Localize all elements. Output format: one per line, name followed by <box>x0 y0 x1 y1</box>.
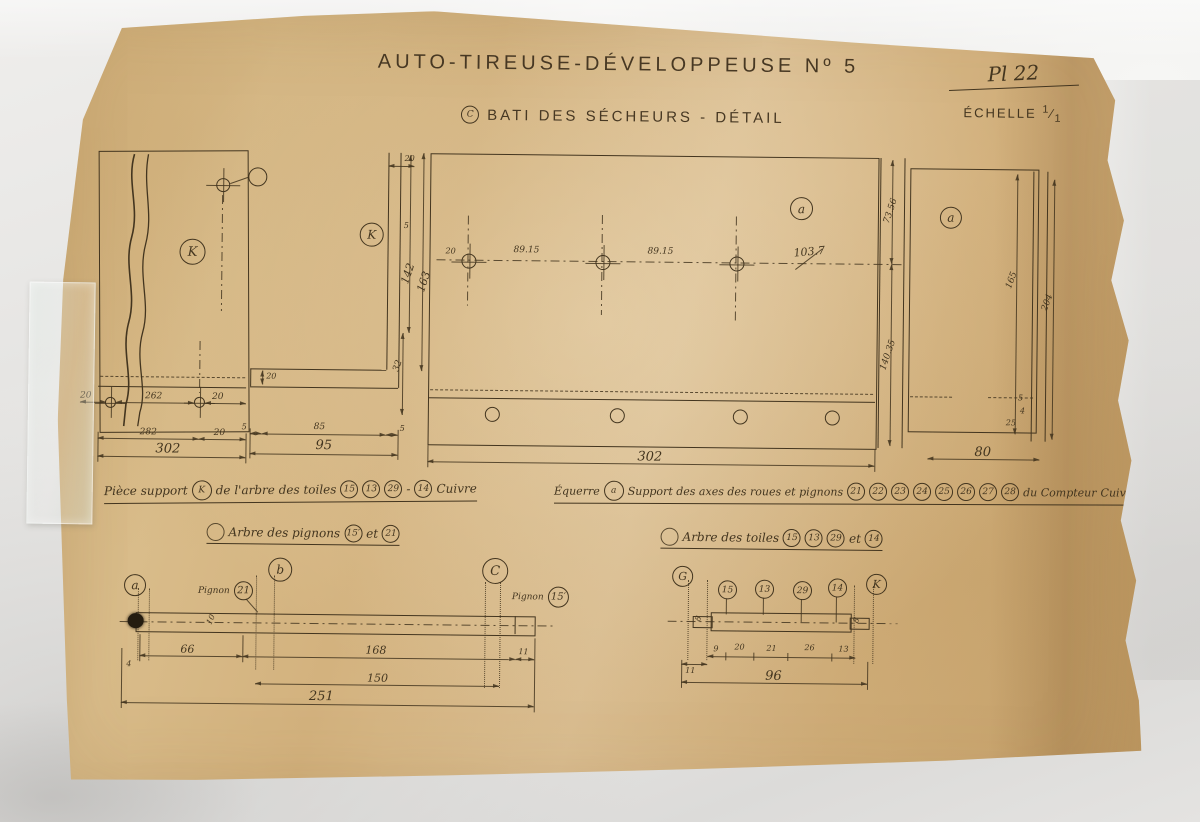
dim-label-total: 302 <box>637 449 662 464</box>
section-ref-g: G <box>672 566 693 587</box>
dim-line-v <box>262 370 263 384</box>
caption-num: 14 <box>414 480 432 498</box>
dim-label: 66 <box>180 643 194 656</box>
dim-line <box>98 438 199 440</box>
extension-line <box>874 450 875 472</box>
dim-label: 5 <box>242 422 247 431</box>
dim-line <box>249 453 397 456</box>
hole-crosshair <box>216 178 230 192</box>
drawing-title: AUTO-TIREUSE-DÉVELOPPEUSE Nº 5 <box>343 50 893 79</box>
caption-num: 15 <box>783 529 801 547</box>
caption-ref-a: a <box>604 481 624 501</box>
dim-label: 20 <box>214 428 226 438</box>
dim-label: 20 <box>734 642 744 651</box>
caption-ref-k: K <box>192 480 212 500</box>
caption-material: Cuivre <box>1101 486 1138 499</box>
dim-label: 142 <box>398 261 417 285</box>
section-ref-b: b <box>268 558 292 582</box>
dim-label: 5 <box>400 424 405 433</box>
caption-num: 15′ <box>344 524 362 542</box>
scale-label: ÉCHELLE <box>963 105 1036 121</box>
part-num: 13 <box>755 580 774 599</box>
dim-tick <box>831 653 832 661</box>
bolt-hole <box>485 407 500 422</box>
dim-label: 20 <box>446 246 456 255</box>
hole-crosshair <box>595 255 610 270</box>
dim-label: 21 <box>766 644 776 653</box>
caption-num: 25 <box>935 483 953 501</box>
bullet-circle <box>660 528 678 546</box>
caption-num: 13 <box>362 480 380 498</box>
dim-label: 20 <box>266 372 276 381</box>
hole-crosshair <box>194 397 205 408</box>
dim-label: 140.35 <box>878 339 898 372</box>
caption-num: 15 <box>340 480 358 498</box>
divider-line <box>902 158 906 448</box>
extension-line <box>534 638 536 712</box>
dim-label-total: 80 <box>974 445 991 460</box>
pignon-label: Pignon <box>512 592 544 602</box>
dim-label: 25 <box>1006 418 1016 427</box>
dim-label: 4 <box>126 659 131 668</box>
hole-crosshair <box>729 256 744 271</box>
part-ref-a2: a <box>940 207 962 229</box>
part-ref-k: K <box>179 239 205 265</box>
dim-label-total: 95 <box>315 438 332 453</box>
dim-line <box>250 433 262 434</box>
caption-material: Cuivre <box>436 481 476 495</box>
pignon-label: Pignon <box>198 586 230 596</box>
bolt-hole <box>825 410 840 425</box>
dim-tick <box>787 653 788 661</box>
dim-label: 89.15 <box>514 245 540 255</box>
caption-num: 21 <box>847 483 865 501</box>
dim-label: 73.56 <box>882 197 900 225</box>
subtitle-text: BATI DES SÉCHEURS - DÉTAIL <box>487 106 785 126</box>
photo-scene: AUTO-TIREUSE-DÉVELOPPEUSE Nº 5 C BATI DE… <box>0 0 1200 822</box>
plate-number: Pl 22 <box>948 59 1079 91</box>
drawing-sheet: AUTO-TIREUSE-DÉVELOPPEUSE Nº 5 C BATI DE… <box>46 0 1149 801</box>
dim-line <box>242 656 515 660</box>
caption-num: 13 <box>805 529 823 547</box>
dim-line <box>386 435 398 436</box>
caption-piece-k: Pièce support K de l'arbre des toiles 15… <box>104 478 477 504</box>
profile-line <box>386 153 389 370</box>
dim-line-v <box>402 333 404 415</box>
dim-label: 11 <box>685 666 695 675</box>
section-ref-k: K <box>866 574 887 595</box>
scale-note: ÉCHELLE 1∕1 <box>933 102 1093 125</box>
dim-label: 9 <box>713 644 718 653</box>
section-cut-dotted <box>687 580 689 660</box>
dim-label: 26 <box>804 643 814 652</box>
dim-line <box>262 433 386 435</box>
panel-a-outline <box>428 153 880 450</box>
part-num: 29 <box>793 581 812 600</box>
caption-text: Équerre <box>554 484 600 497</box>
dim-label-total: 302 <box>155 441 180 456</box>
section-ref-a: a <box>124 574 146 596</box>
dim-label: 5 <box>1018 393 1023 402</box>
part-ref-k-profile: K <box>360 223 384 247</box>
caption-text: - <box>406 482 410 496</box>
caption-num: 29 <box>827 529 845 547</box>
dim-label: 4 <box>1020 406 1025 415</box>
caption-text: Pièce support <box>104 484 188 499</box>
extension-line <box>867 662 868 690</box>
dim-label-total: 251 <box>309 689 334 704</box>
drawing-subtitle: C BATI DES SÉCHEURS - DÉTAIL <box>403 105 843 128</box>
scale-numerator: 1 <box>1042 104 1050 116</box>
scale-denominator: 1 <box>1054 113 1062 125</box>
bullet-circle <box>207 523 225 541</box>
extension-line <box>427 445 428 467</box>
caption-num: 27 <box>979 483 997 501</box>
caption-arbre-toiles: Arbre des toiles 15 13 29 et 14 <box>660 528 883 551</box>
bolt-hole <box>733 409 748 424</box>
dim-label: 262 <box>145 391 162 401</box>
caption-num: 24 <box>913 483 931 501</box>
part-ref-a: a <box>790 197 813 220</box>
profile-line <box>250 386 398 389</box>
caption-text: de l'arbre des toiles <box>216 482 337 497</box>
dim-line-v <box>421 153 424 371</box>
dim-label: 150 <box>367 672 388 685</box>
dim-line <box>515 659 534 660</box>
dim-label: 89.15 <box>648 247 674 257</box>
dim-tick <box>753 653 754 661</box>
dim-label: 85 <box>314 422 326 432</box>
part-num: 14 <box>828 578 847 597</box>
hole-crosshair <box>105 397 116 408</box>
profile-line <box>250 368 251 386</box>
caption-text: du Compteur <box>1023 486 1096 499</box>
pignon-num: 21 <box>234 581 253 600</box>
dim-label: 13 <box>838 645 848 654</box>
caption-num: 14 <box>865 530 883 548</box>
caption-num: 22 <box>869 483 887 501</box>
caption-text: et <box>849 532 861 546</box>
ink-blot <box>128 613 144 628</box>
extension-line <box>397 430 398 460</box>
extension-line <box>121 648 123 708</box>
section-cut-dotted <box>872 586 874 664</box>
caption-num: 23 <box>891 483 909 501</box>
dim-label: 5 <box>404 221 409 230</box>
caption-text: Arbre des pignons <box>229 525 341 540</box>
pignon-num: 15′ <box>548 586 569 607</box>
caption-num: 29 <box>384 480 402 498</box>
caption-num: 26 <box>957 483 975 501</box>
dim-tick <box>725 652 726 660</box>
circled-c-mark: C <box>461 106 479 124</box>
bolt-hole <box>610 408 625 423</box>
dim-line-v <box>409 155 412 333</box>
dim-line <box>707 656 855 659</box>
dim-line <box>199 439 246 440</box>
caption-text: Support des axes des roues et pignons <box>628 484 843 498</box>
caption-text: Arbre des toiles <box>682 530 779 545</box>
dim-label-total: 96 <box>765 669 782 684</box>
dim-label: 168 <box>365 644 386 657</box>
hole-crosshair <box>461 254 476 269</box>
dim-line-v <box>1052 180 1056 440</box>
extension-line <box>245 433 246 463</box>
part-num: 15 <box>718 580 737 599</box>
caption-num: 21 <box>382 525 400 543</box>
dim-label: 11 <box>518 647 528 656</box>
dim-label: 282 <box>140 427 157 437</box>
caption-num: 28 <box>1001 483 1019 501</box>
caption-arbre-pignons: Arbre des pignons 15′ et 21 <box>206 523 400 546</box>
caption-equerre-a: Équerre a Support des axes des roues et … <box>554 481 1138 506</box>
glass-weight <box>26 282 95 525</box>
caption-text: et <box>366 527 378 541</box>
profile-line <box>250 368 386 370</box>
section-ref-c: C <box>482 558 508 584</box>
hole-ref-bubble <box>248 167 267 186</box>
dim-label: 20 <box>212 392 224 402</box>
